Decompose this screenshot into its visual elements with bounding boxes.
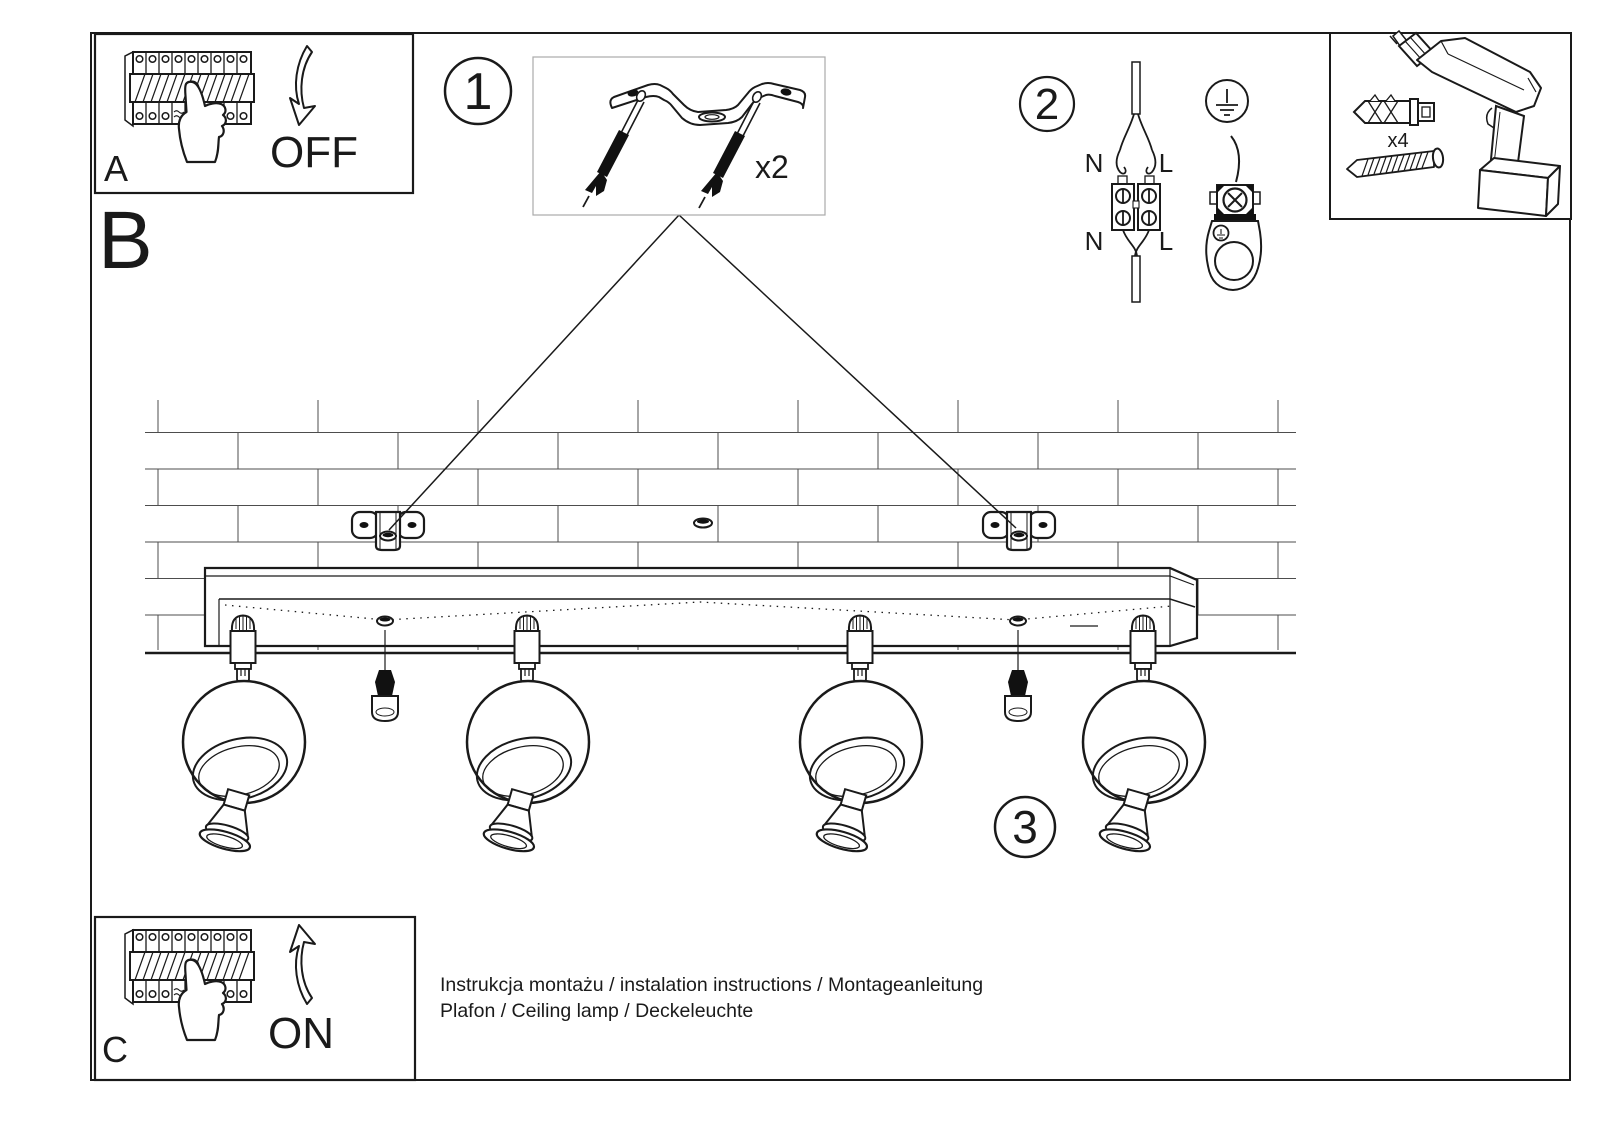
step-3-badge: 3 (995, 797, 1055, 857)
panel-c-label: C (102, 1029, 128, 1070)
diagram-canvas: 3 OFF A B 1 x2 2 N L N (0, 0, 1600, 1130)
footer-line-2: Plafon / Ceiling lamp / Deckeleuchte (440, 1000, 753, 1022)
step-2-number: 2 (1035, 80, 1059, 129)
spotlight-icon (1083, 616, 1205, 856)
rail-screw-hole (1010, 617, 1026, 626)
toolbox: x4 (1330, 31, 1571, 219)
step-2-wiring: 2 N L N L (1020, 62, 1261, 302)
spotlight-icon (467, 616, 589, 856)
wire-label-l-top: L (1159, 148, 1173, 178)
footer-line-1: Instrukcja montażu / instalation instruc… (440, 974, 983, 996)
off-label: OFF (270, 128, 358, 177)
panel-c-switch-on: ON C (95, 917, 415, 1080)
ground-wire (1231, 136, 1239, 182)
ceiling-rail-icon (205, 568, 1197, 646)
panel-a-label: A (104, 148, 128, 189)
instruction-sheet: 3 OFF A B 1 x2 2 N L N (0, 0, 1600, 1130)
wall-top-joints (158, 400, 1278, 432)
earth-symbol-icon (1206, 80, 1248, 122)
anchor-quantity: x4 (1387, 130, 1408, 152)
wire-label-l-bottom: L (1159, 226, 1173, 256)
wire-label-n-bottom: N (1085, 226, 1104, 256)
panel-a-switch-off: OFF A (95, 34, 413, 193)
section-b-label: B (98, 195, 153, 286)
wall-drill-hole (694, 519, 712, 528)
bracket-center-hole (383, 533, 394, 537)
on-label: ON (268, 1009, 334, 1058)
bracket-quantity: x2 (755, 149, 789, 185)
step-3-number: 3 (1012, 801, 1038, 853)
spotlight-icon (183, 616, 305, 856)
step-1-number: 1 (464, 63, 493, 121)
wire-label-n-top: N (1085, 148, 1104, 178)
ground-terminal-icon (1206, 185, 1261, 290)
footer: Instrukcja montażu / instalation instruc… (440, 974, 983, 1022)
step-1-kit: 1 x2 (445, 57, 825, 215)
rail-screw-hole (377, 617, 393, 626)
terminal-block-icon (1112, 62, 1160, 302)
bracket-center-hole (1014, 533, 1025, 537)
spotlight-icon (800, 616, 922, 856)
kit-box (533, 57, 825, 215)
